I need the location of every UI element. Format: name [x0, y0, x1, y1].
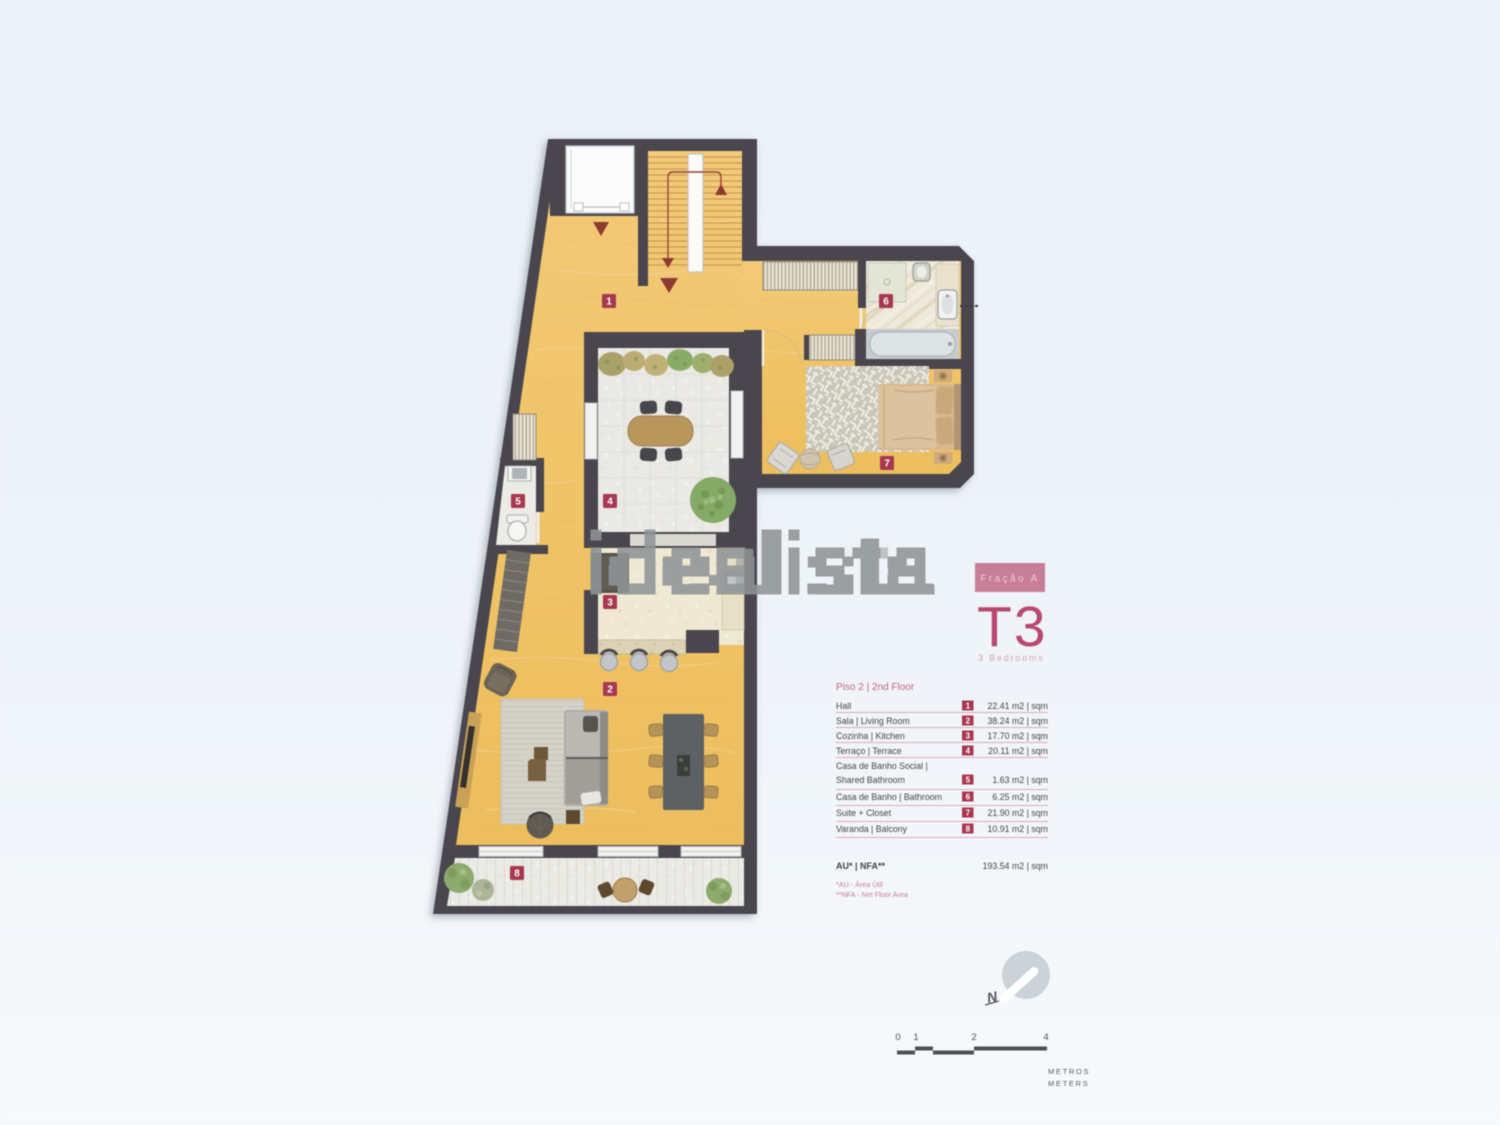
svg-text:1.63 m2 | sqm: 1.63 m2 | sqm	[992, 775, 1048, 785]
svg-text:7: 7	[884, 459, 890, 470]
svg-text:4: 4	[1043, 1032, 1048, 1043]
svg-text:2: 2	[971, 1032, 976, 1043]
svg-text:Casa de Banho | Bathroom: Casa de Banho | Bathroom	[836, 792, 942, 802]
svg-text:T3: T3	[977, 595, 1048, 659]
svg-text:2: 2	[607, 685, 613, 696]
svg-text:7: 7	[966, 809, 971, 818]
svg-text:0: 0	[895, 1032, 900, 1043]
svg-text:10.91 m2 | sqm: 10.91 m2 | sqm	[988, 824, 1048, 834]
svg-text:1: 1	[966, 702, 971, 711]
svg-text:Fração A: Fração A	[980, 574, 1039, 585]
svg-text:Varanda | Balcony: Varanda | Balcony	[836, 824, 908, 834]
svg-text:3: 3	[966, 732, 971, 741]
svg-text:Hall: Hall	[836, 701, 851, 711]
svg-text:Piso 2 | 2nd Floor: Piso 2 | 2nd Floor	[836, 682, 915, 693]
svg-text:**NFA - Net Floor Area: **NFA - Net Floor Area	[836, 890, 908, 899]
svg-text:4: 4	[607, 497, 613, 508]
svg-text:193.54 m2 | sqm: 193.54 m2 | sqm	[983, 861, 1048, 871]
svg-text:AU* | NFA**: AU* | NFA**	[836, 861, 886, 871]
svg-text:Cozinha | Kitchen: Cozinha | Kitchen	[836, 731, 905, 741]
svg-text:Casa de Banho Social |: Casa de Banho Social |	[836, 761, 928, 771]
svg-text:6: 6	[966, 793, 971, 802]
svg-text:20.11 m2 | sqm: 20.11 m2 | sqm	[988, 746, 1048, 756]
svg-text:4: 4	[966, 747, 971, 756]
svg-text:3 Bedrooms: 3 Bedrooms	[978, 653, 1045, 663]
svg-text:1: 1	[606, 297, 612, 308]
svg-text:8: 8	[966, 825, 971, 834]
svg-text:METROS: METROS	[1048, 1067, 1090, 1076]
svg-text:Shared Bathroom: Shared Bathroom	[836, 775, 905, 785]
svg-text:22.41 m2 | sqm: 22.41 m2 | sqm	[988, 701, 1048, 711]
svg-text:Suite + Closet: Suite + Closet	[836, 808, 892, 818]
svg-text:Terraço | Terrace: Terraço | Terrace	[836, 746, 902, 756]
svg-text:1: 1	[913, 1032, 918, 1043]
svg-text:*AU - Área Útil: *AU - Área Útil	[836, 880, 883, 889]
svg-text:5: 5	[966, 776, 971, 785]
svg-text:21.90 m2 | sqm: 21.90 m2 | sqm	[988, 808, 1048, 818]
svg-text:2: 2	[966, 717, 971, 726]
svg-text:8: 8	[514, 869, 520, 880]
svg-text:6: 6	[883, 297, 889, 308]
svg-text:5: 5	[515, 497, 521, 508]
svg-text:idealista: idealista	[585, 518, 934, 615]
svg-text:17.70 m2 | sqm: 17.70 m2 | sqm	[988, 731, 1048, 741]
svg-text:Sala | Living Room: Sala | Living Room	[836, 716, 910, 726]
svg-text:6.25 m2 | sqm: 6.25 m2 | sqm	[992, 792, 1048, 802]
svg-text:38.24 m2 | sqm: 38.24 m2 | sqm	[988, 716, 1048, 726]
svg-text:METERS: METERS	[1048, 1079, 1089, 1088]
